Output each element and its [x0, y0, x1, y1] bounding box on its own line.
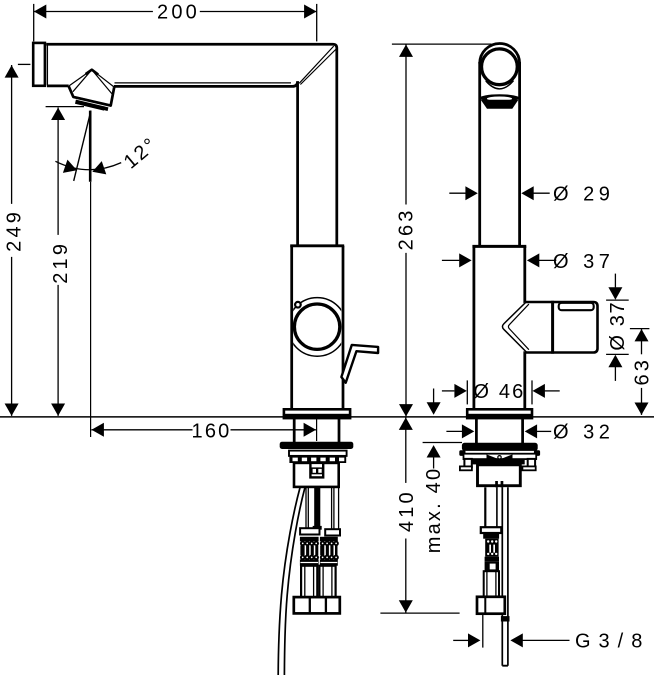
svg-text:Ø 37: Ø 37 — [607, 301, 629, 351]
svg-text:160: 160 — [192, 420, 232, 442]
svg-text:max. 40: max. 40 — [423, 467, 445, 554]
svg-text:219: 219 — [50, 241, 72, 284]
svg-text:G3/8: G3/8 — [575, 631, 650, 653]
svg-text:Ø 32: Ø 32 — [553, 422, 614, 444]
svg-text:200: 200 — [157, 1, 200, 23]
svg-text:63: 63 — [632, 357, 654, 386]
svg-text:Ø 29: Ø 29 — [553, 184, 614, 206]
svg-text:Ø 37: Ø 37 — [553, 251, 614, 273]
svg-text:410: 410 — [396, 489, 418, 532]
svg-text:Ø 46: Ø 46 — [473, 381, 525, 403]
svg-text:263: 263 — [395, 207, 417, 250]
svg-text:249: 249 — [3, 209, 25, 252]
